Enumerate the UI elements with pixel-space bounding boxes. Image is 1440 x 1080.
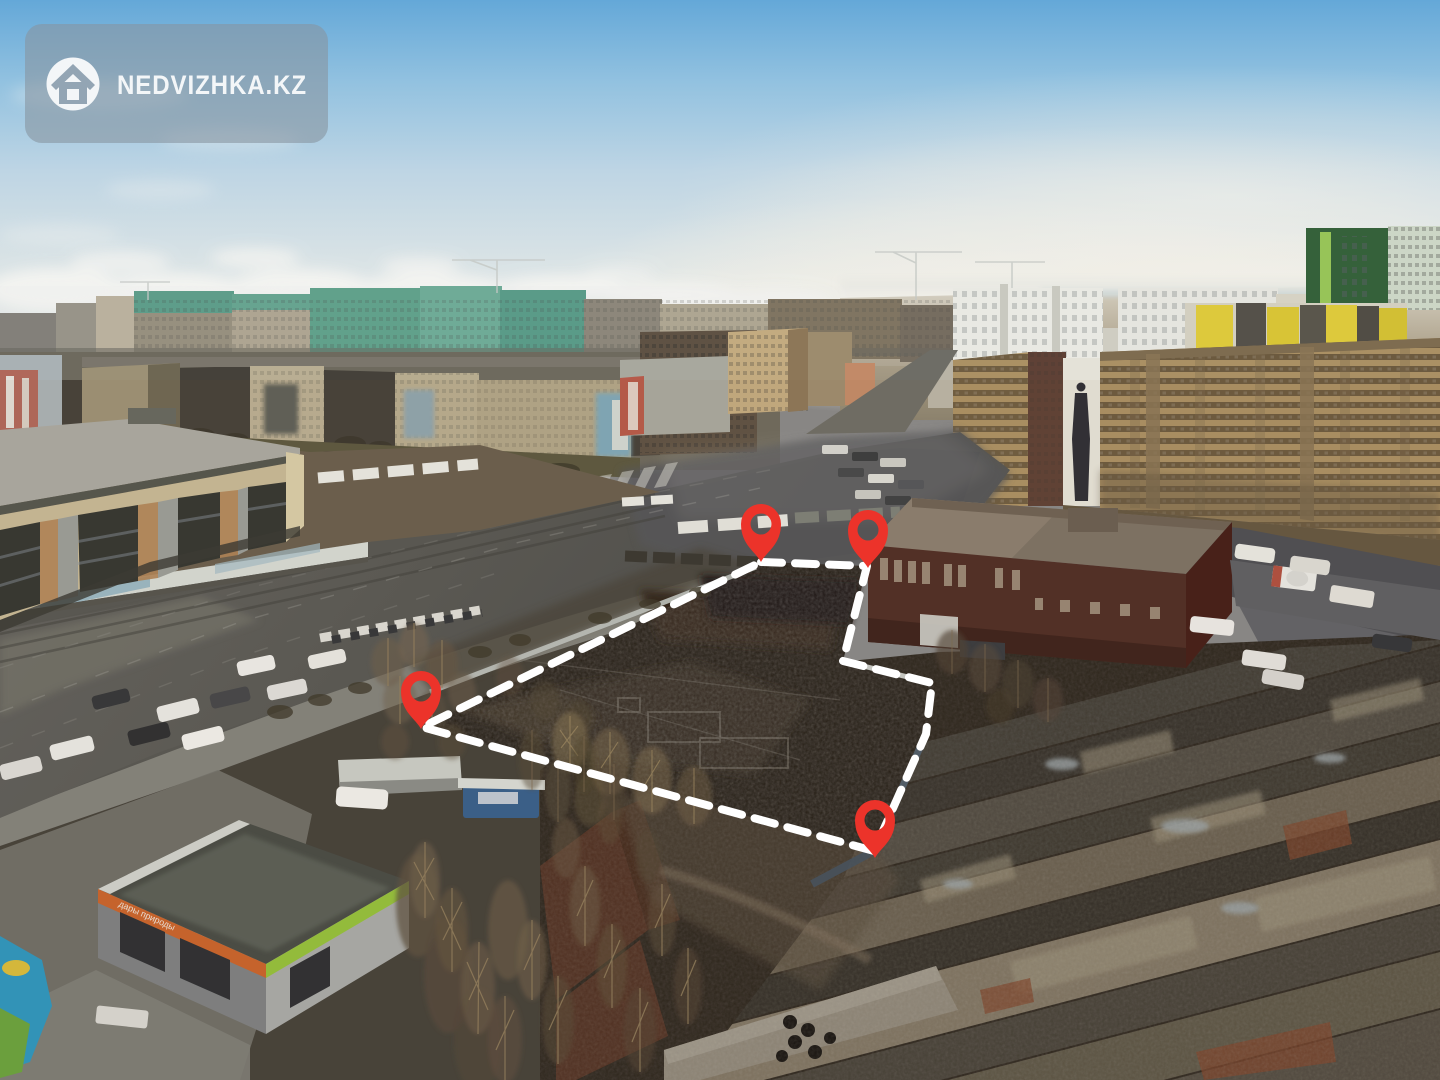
- svg-text:NEDVIZHKA.KZ: NEDVIZHKA.KZ: [117, 70, 307, 100]
